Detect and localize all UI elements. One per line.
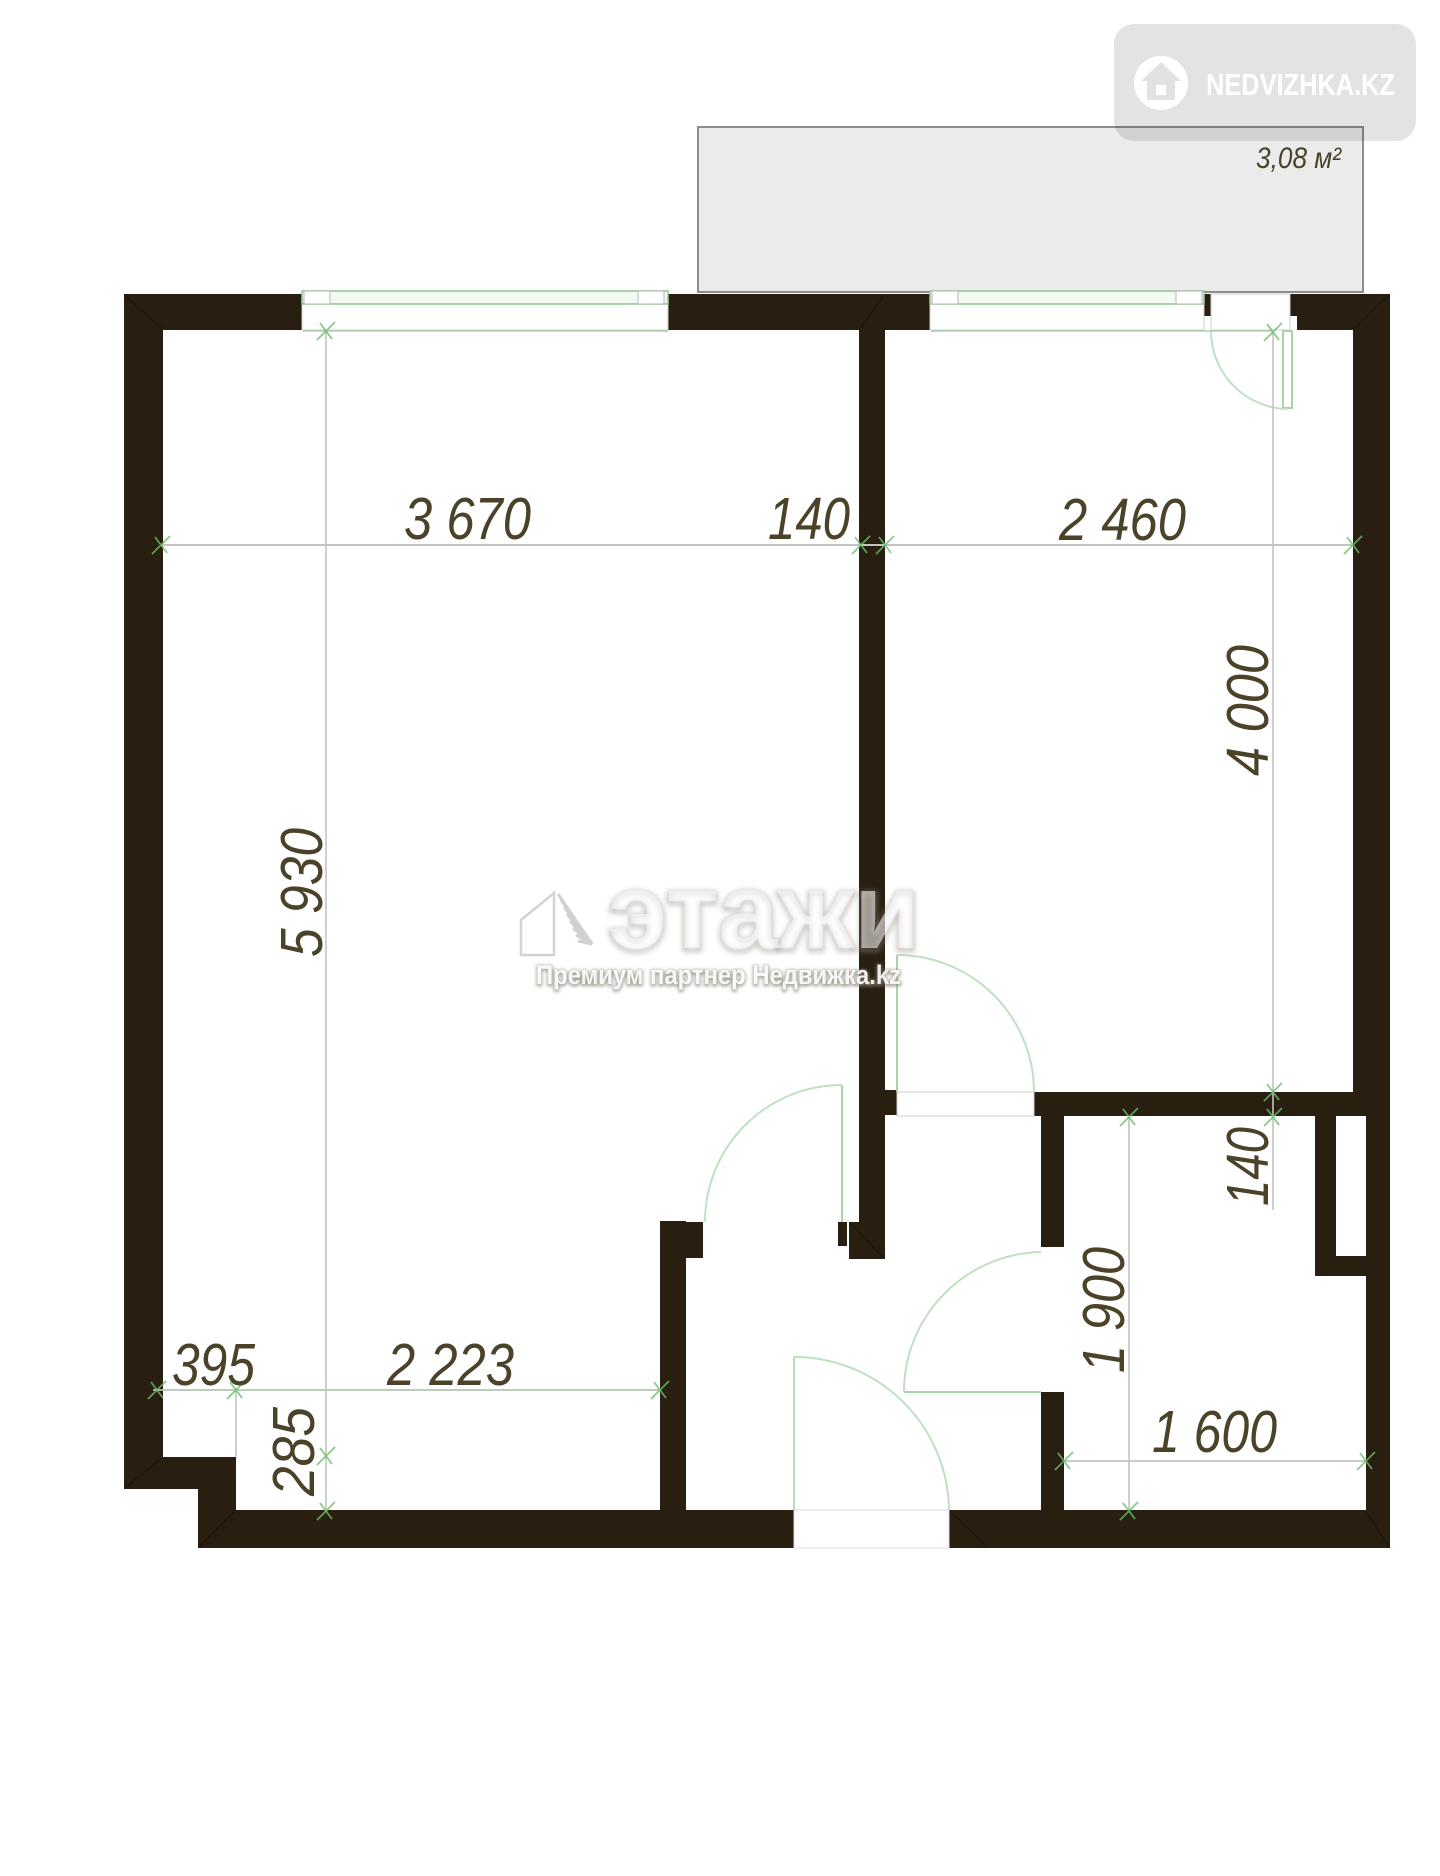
svg-text:140: 140 bbox=[1215, 1127, 1281, 1206]
svg-text:285: 285 bbox=[261, 1407, 327, 1497]
svg-text:NEDVIZHKA.KZ: NEDVIZHKA.KZ bbox=[1206, 67, 1395, 102]
svg-text:140: 140 bbox=[768, 486, 850, 552]
svg-text:этажи: этажи bbox=[608, 850, 920, 971]
svg-text:395: 395 bbox=[172, 1332, 255, 1398]
svg-text:1 900: 1 900 bbox=[1071, 1247, 1137, 1373]
svg-text:2 460: 2 460 bbox=[1058, 487, 1186, 553]
svg-text:1 600: 1 600 bbox=[1152, 1399, 1277, 1465]
svg-text:4 000: 4 000 bbox=[1215, 645, 1281, 776]
svg-text:Премиум партнер Недвижка.kz: Премиум партнер Недвижка.kz bbox=[536, 960, 901, 990]
svg-text:3 670: 3 670 bbox=[404, 486, 531, 552]
svg-text:5 930: 5 930 bbox=[269, 828, 335, 957]
svg-text:2 223: 2 223 bbox=[386, 1332, 514, 1398]
svg-text:3,08 м²: 3,08 м² bbox=[1256, 142, 1342, 175]
